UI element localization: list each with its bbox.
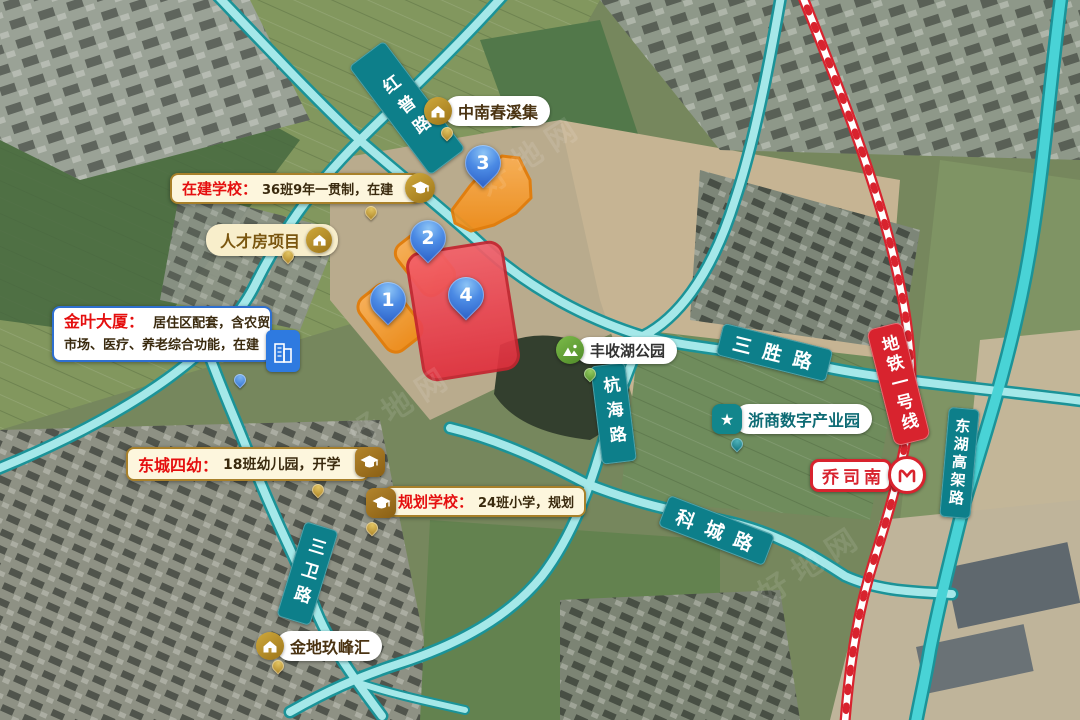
pin-number: 1 <box>370 282 406 318</box>
callout-detail: 18班幼儿园，开学 <box>223 454 340 474</box>
callout-detail-line1: 居住区配套，含农贸 <box>153 316 270 331</box>
callout-detail: 36班9年一贯制，在建 <box>262 179 393 198</box>
callout-title: 金叶大厦： <box>64 312 144 331</box>
poi-fengshou-lake-park: 丰收湖公园 <box>556 336 677 364</box>
poi-talent-housing: 人才房项目 <box>206 224 338 256</box>
poi-zheshang-digital-park: ★ 浙商数字产业园 <box>712 404 872 434</box>
poi-label: 中南春溪集 <box>444 96 550 126</box>
park-icon <box>556 336 584 364</box>
poi-label: 人才房项目 <box>220 228 300 252</box>
house-icon <box>306 227 332 253</box>
poi-label: 浙商数字产业园 <box>734 404 872 434</box>
parcel-pin-3[interactable]: 3 <box>458 138 509 189</box>
callout-detail: 24班小学，规划 <box>478 492 574 511</box>
callout-dongcheng-kindergarten: 东城四幼： 18班幼儿园，开学 <box>126 447 369 481</box>
parcel-pin-2[interactable]: 2 <box>403 213 454 264</box>
parcel-pin-4[interactable]: 4 <box>441 270 492 321</box>
pin-number: 4 <box>448 277 484 313</box>
poi-label: 丰收湖公园 <box>576 337 677 364</box>
parcel-pin-1[interactable]: 1 <box>363 275 414 326</box>
callout-planned-school: 规划学校： 24班小学，规划 <box>384 486 586 517</box>
graduation-cap-icon <box>405 173 435 203</box>
metro-logo-icon <box>888 456 926 494</box>
graduation-cap-icon <box>355 447 385 477</box>
house-icon <box>424 97 452 125</box>
graduation-cap-icon <box>366 488 396 518</box>
callout-jinye-tower: 金叶大厦： 居住区配套，含农贸 市场、医疗、养老综合功能，在建 <box>52 306 272 362</box>
satellite-map: 好地网 好地网 好地网 红普路 三胜路 杭海路 科城路 三卫路 东湖高架路 地铁… <box>0 0 1080 720</box>
callout-school-in-construction: 在建学校： 36班9年一贯制，在建 <box>170 173 421 204</box>
poi-zhongnan-chunxiji: 中南春溪集 <box>424 96 550 126</box>
callout-title: 规划学校： <box>398 491 473 512</box>
metro-station-label: 乔司南 <box>810 459 892 492</box>
poi-label: 金地玖峰汇 <box>276 631 382 661</box>
pin-number: 3 <box>465 145 501 181</box>
callout-detail-line2: 市场、医疗、养老综合功能，在建 <box>64 338 259 353</box>
callout-title: 在建学校： <box>182 178 257 199</box>
pin-number: 2 <box>410 220 446 256</box>
metro-station-qiaosinan[interactable]: 乔司南 <box>810 456 926 494</box>
building-icon <box>266 330 300 372</box>
star-icon: ★ <box>712 404 742 434</box>
house-icon <box>256 632 284 660</box>
callout-title: 东城四幼： <box>138 452 218 476</box>
poi-jindi-jiufenghui: 金地玖峰汇 <box>256 631 382 661</box>
